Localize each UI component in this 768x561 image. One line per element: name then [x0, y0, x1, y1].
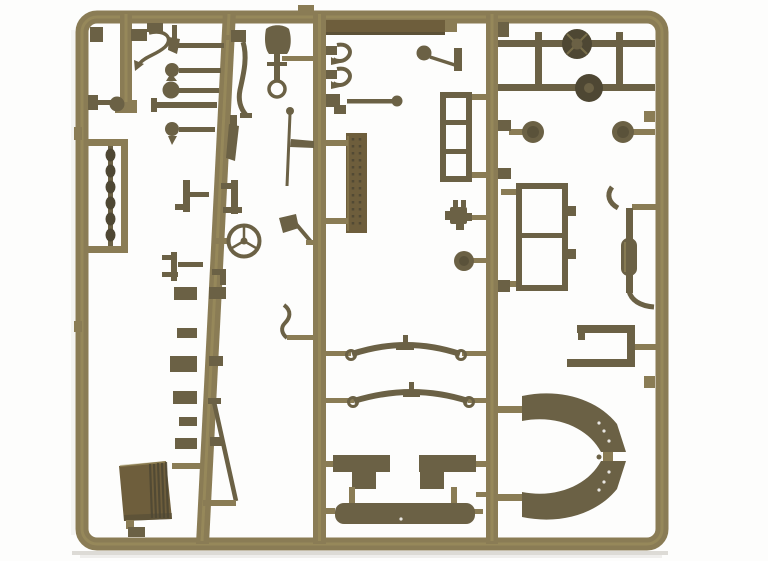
front-bumper-strip — [326, 20, 457, 35]
rear-bench — [326, 503, 483, 524]
runner4-top-block — [498, 22, 509, 37]
runner-4 — [486, 11, 498, 544]
runner-3 — [313, 11, 326, 544]
runner4-side-block — [498, 280, 510, 292]
photo-of-model-kit-sprue: Photograph of an olive-drab injection-mo… — [0, 0, 768, 561]
sprue-illustration — [0, 0, 768, 561]
